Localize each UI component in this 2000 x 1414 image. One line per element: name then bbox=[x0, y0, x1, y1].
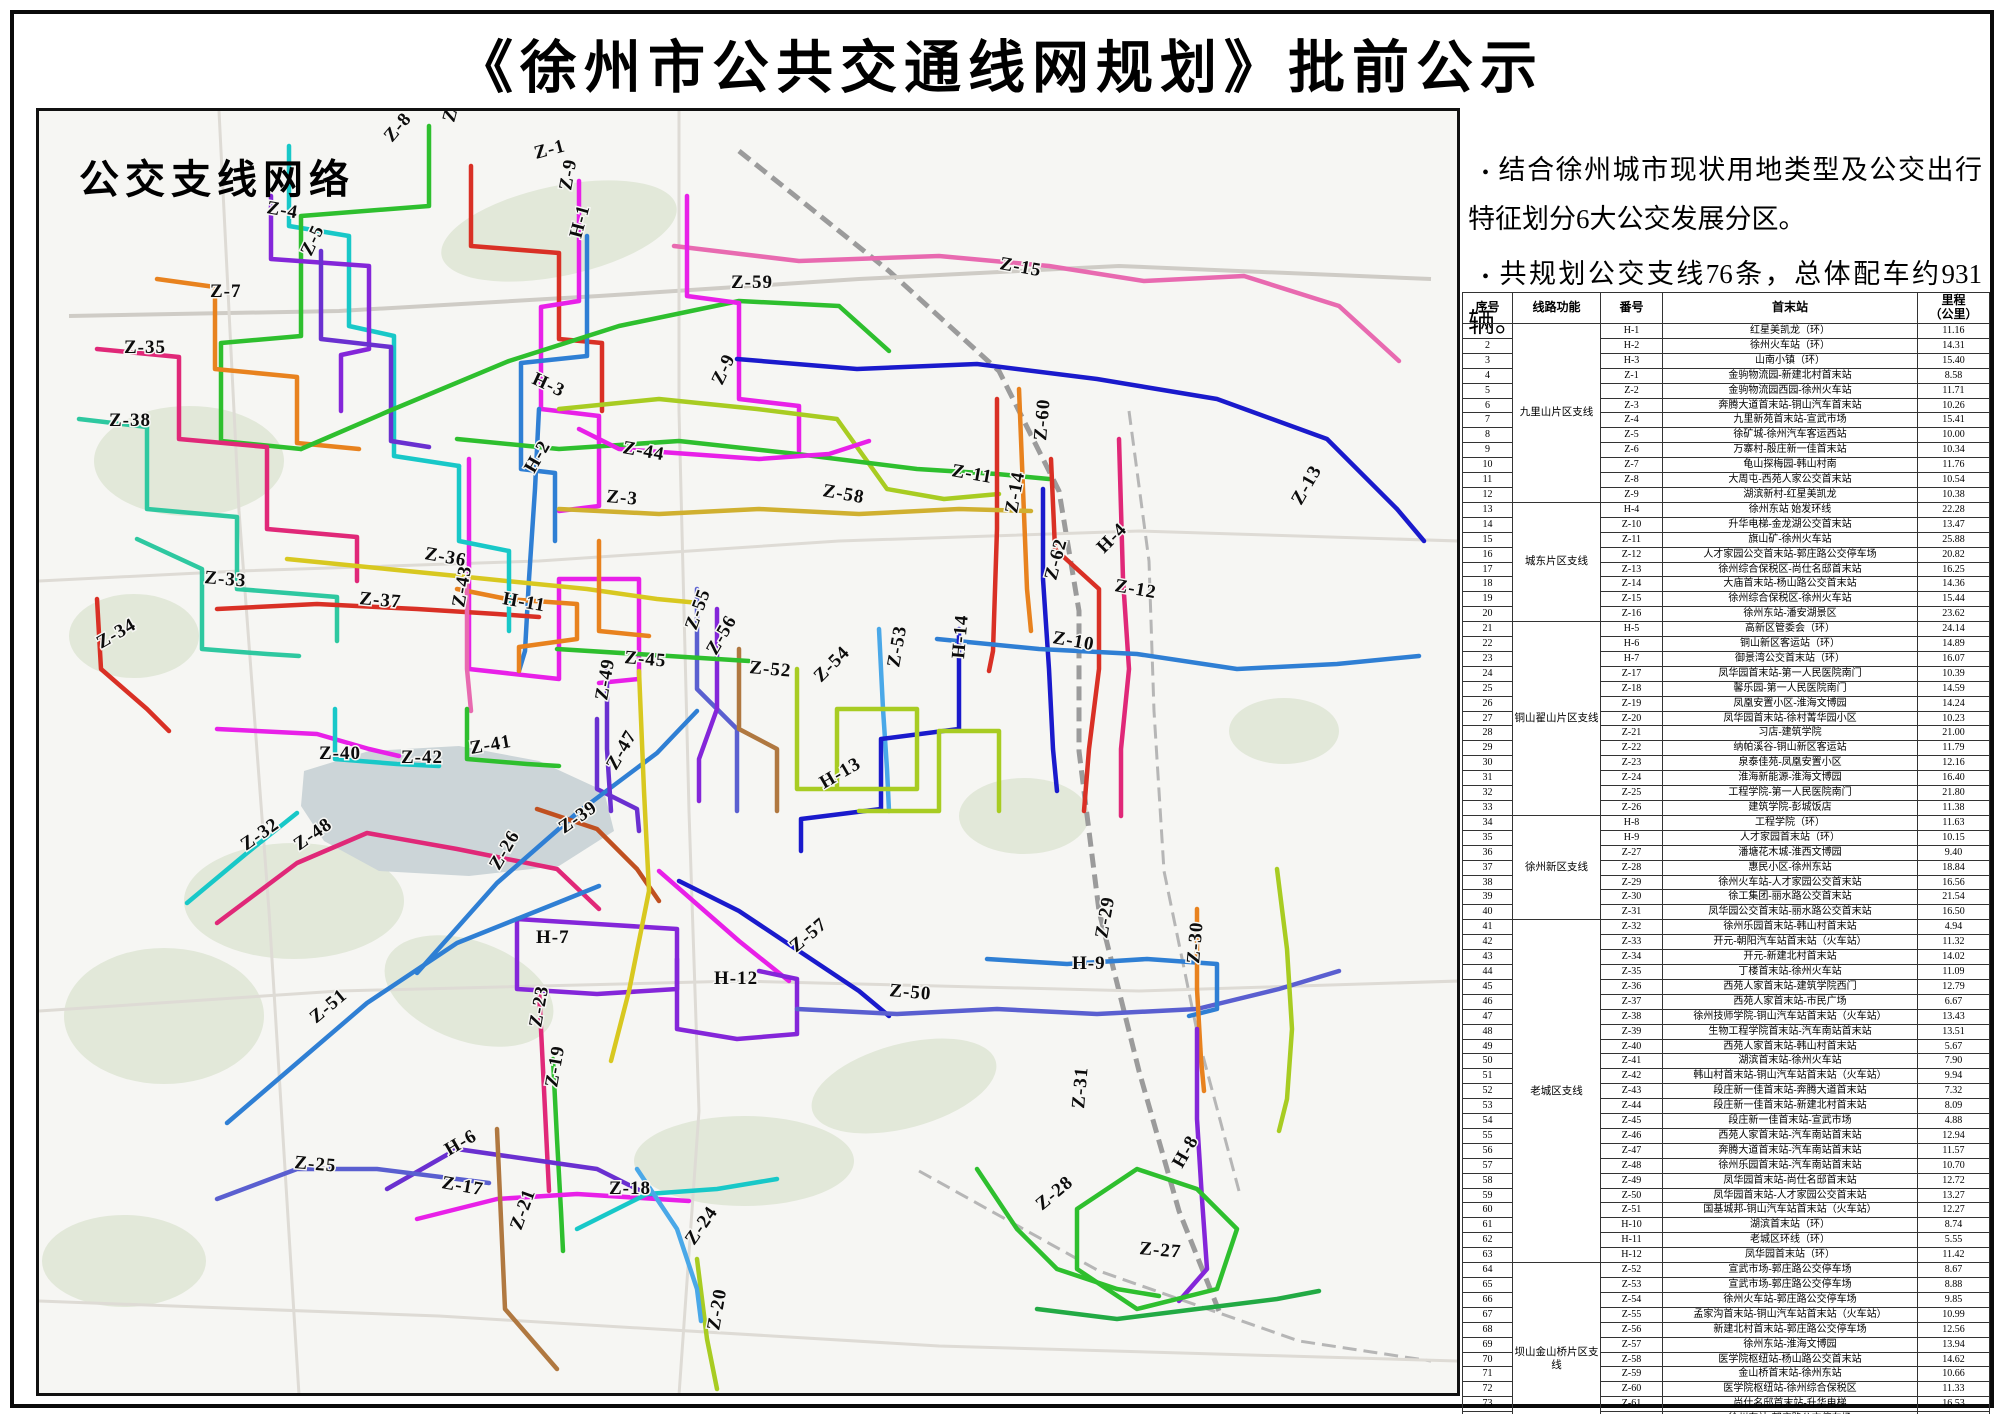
row-number-cell: 41 bbox=[1463, 920, 1513, 935]
terminus-cell: 徐州技师学院-铜山汽车站首末站（火车站） bbox=[1663, 1009, 1918, 1024]
route-code-cell: Z-47 bbox=[1601, 1143, 1663, 1158]
row-number-cell: 50 bbox=[1463, 1054, 1513, 1069]
route-code-cell: Z-50 bbox=[1601, 1188, 1663, 1203]
row-number-cell: 62 bbox=[1463, 1233, 1513, 1248]
terminus-cell: 段庄新一佳首末站-宣武市场 bbox=[1663, 1114, 1918, 1129]
mileage-cell: 4.94 bbox=[1918, 920, 1990, 935]
terminus-cell: 徐州综合保税区-尚仕名邸首末站 bbox=[1663, 562, 1918, 577]
row-number-cell: 64 bbox=[1463, 1263, 1513, 1278]
table-row: 1九里山片区支线H-1红星美凯龙（环）11.16 bbox=[1463, 324, 1990, 339]
route-code-cell: Z-44 bbox=[1601, 1099, 1663, 1114]
route-label: Z-54 bbox=[810, 642, 855, 687]
route-code-cell: Z-12 bbox=[1601, 547, 1663, 562]
route-label: H-12 bbox=[714, 968, 758, 989]
row-number-cell: 56 bbox=[1463, 1143, 1513, 1158]
row-number-cell: 54 bbox=[1463, 1114, 1513, 1129]
route-code-cell: Z-54 bbox=[1601, 1292, 1663, 1307]
table-header-cell: 序号 bbox=[1463, 293, 1513, 324]
route-code-cell: Z-4 bbox=[1601, 413, 1663, 428]
route-code-cell: Z-23 bbox=[1601, 756, 1663, 771]
mileage-cell: 14.31 bbox=[1918, 338, 1990, 353]
row-number-cell: 30 bbox=[1463, 756, 1513, 771]
mileage-cell: 21.54 bbox=[1918, 890, 1990, 905]
terminus-cell: 徐州东站-淮海文博园 bbox=[1663, 1337, 1918, 1352]
terminus-cell: 大庙首末站-杨山路公交首末站 bbox=[1663, 577, 1918, 592]
route-label: Z-19 bbox=[541, 1044, 569, 1089]
mileage-cell: 9.94 bbox=[1918, 1069, 1990, 1084]
mileage-cell: 10.70 bbox=[1918, 1158, 1990, 1173]
route-code-cell: H-11 bbox=[1601, 1233, 1663, 1248]
route-label: Z-59 bbox=[731, 272, 773, 293]
bus-route-line bbox=[559, 509, 1031, 514]
terminus-cell: 升华电梯-金龙湖公交首末站 bbox=[1663, 517, 1918, 532]
mileage-cell: 16.25 bbox=[1918, 562, 1990, 577]
route-label: Z-3 bbox=[606, 486, 639, 510]
route-code-cell: Z-39 bbox=[1601, 1024, 1663, 1039]
mileage-cell: 12.94 bbox=[1918, 1128, 1990, 1143]
route-label: Z-38 bbox=[109, 410, 151, 431]
row-number-cell: 43 bbox=[1463, 950, 1513, 965]
transit-map: Z-8Z-2Z-1Z-9Z-4Z-5H-1Z-7Z-15Z-59Z-35H-3Z… bbox=[39, 111, 1459, 1395]
terminus-cell: 徐州火车站-郭庄路公交停车场 bbox=[1663, 1292, 1918, 1307]
route-label: Z-15 bbox=[998, 253, 1043, 281]
mileage-cell: 12.56 bbox=[1918, 1322, 1990, 1337]
row-number-cell: 2 bbox=[1463, 338, 1513, 353]
row-number-cell: 15 bbox=[1463, 532, 1513, 547]
mileage-cell: 21.00 bbox=[1918, 726, 1990, 741]
row-number-cell: 66 bbox=[1463, 1292, 1513, 1307]
terminus-cell: 凤华园首末站（环） bbox=[1663, 1248, 1918, 1263]
mileage-cell: 14.02 bbox=[1918, 950, 1990, 965]
row-number-cell: 51 bbox=[1463, 1069, 1513, 1084]
route-label: Z-27 bbox=[1139, 1238, 1183, 1263]
mileage-cell: 11.79 bbox=[1918, 741, 1990, 756]
row-number-cell: 57 bbox=[1463, 1158, 1513, 1173]
route-label: Z-24 bbox=[681, 1202, 722, 1248]
route-label: Z-56 bbox=[702, 612, 741, 659]
route-label: Z-2 bbox=[439, 111, 467, 124]
terminus-cell: 淮海新能源-淮海文博园 bbox=[1663, 771, 1918, 786]
row-number-cell: 47 bbox=[1463, 1009, 1513, 1024]
terminus-cell: 西苑人家首末站-汽车南站首末站 bbox=[1663, 1128, 1918, 1143]
mileage-cell: 10.54 bbox=[1918, 473, 1990, 488]
route-code-cell: Z-40 bbox=[1601, 1039, 1663, 1054]
terminus-cell: 旗山矿-徐州火车站 bbox=[1663, 532, 1918, 547]
route-label: Z-20 bbox=[703, 1287, 731, 1332]
row-number-cell: 12 bbox=[1463, 487, 1513, 502]
route-code-cell: Z-2 bbox=[1601, 383, 1663, 398]
row-number-cell: 27 bbox=[1463, 711, 1513, 726]
terminus-cell: 金山桥首末站-徐州东站 bbox=[1663, 1367, 1918, 1382]
terminus-cell: 徐州火车站-人才家园公交首末站 bbox=[1663, 875, 1918, 890]
poster: 《徐州市公共交通线网规划》批前公示 bbox=[0, 0, 2000, 1414]
row-number-cell: 1 bbox=[1463, 324, 1513, 339]
terminus-cell: 湖滨首末站-徐州火车站 bbox=[1663, 1054, 1918, 1069]
route-code-cell: Z-56 bbox=[1601, 1322, 1663, 1337]
mileage-cell: 6.67 bbox=[1918, 994, 1990, 1009]
route-code-cell: Z-11 bbox=[1601, 532, 1663, 547]
route-code-cell: Z-20 bbox=[1601, 711, 1663, 726]
row-number-cell: 73 bbox=[1463, 1397, 1513, 1412]
row-number-cell: 40 bbox=[1463, 905, 1513, 920]
terminus-cell: 西苑人家首末站-韩山村首末站 bbox=[1663, 1039, 1918, 1054]
route-code-cell: Z-60 bbox=[1601, 1382, 1663, 1397]
mileage-cell: 10.39 bbox=[1918, 666, 1990, 681]
terminus-cell: 徐矿城-徐州汽车客运西站 bbox=[1663, 428, 1918, 443]
map-panel: Z-8Z-2Z-1Z-9Z-4Z-5H-1Z-7Z-15Z-59Z-35H-3Z… bbox=[36, 108, 1460, 1396]
row-number-cell: 61 bbox=[1463, 1218, 1513, 1233]
table-row: 13城东片区支线H-4徐州东站 始发环线22.28 bbox=[1463, 502, 1990, 517]
row-number-cell: 49 bbox=[1463, 1039, 1513, 1054]
route-label: Z-50 bbox=[889, 980, 933, 1005]
mileage-cell: 20.82 bbox=[1918, 547, 1990, 562]
mileage-cell: 5.67 bbox=[1918, 1039, 1990, 1054]
route-code-cell: H-8 bbox=[1601, 815, 1663, 830]
terminus-cell: 段庄新一佳首末站-新建北村首末站 bbox=[1663, 1099, 1918, 1114]
row-number-cell: 71 bbox=[1463, 1367, 1513, 1382]
mileage-cell: 7.32 bbox=[1918, 1084, 1990, 1099]
mileage-cell: 16.56 bbox=[1918, 875, 1990, 890]
note-line-1: •结合徐州城市现状用地类型及公交出行特征划分6大公交发展分区。 bbox=[1468, 146, 1982, 244]
route-code-cell: Z-7 bbox=[1601, 458, 1663, 473]
route-code-cell: Z-31 bbox=[1601, 905, 1663, 920]
route-label: Z-57 bbox=[786, 914, 832, 957]
route-code-cell: Z-30 bbox=[1601, 890, 1663, 905]
route-code-cell: Z-48 bbox=[1601, 1158, 1663, 1173]
route-label: Z-35 bbox=[124, 337, 166, 358]
terminus-cell: 御景湾公交首末站（环） bbox=[1663, 651, 1918, 666]
bus-route-line bbox=[1119, 439, 1129, 816]
mileage-cell: 8.58 bbox=[1918, 368, 1990, 383]
row-number-cell: 46 bbox=[1463, 994, 1513, 1009]
mileage-cell: 11.16 bbox=[1918, 324, 1990, 339]
route-code-cell: Z-6 bbox=[1601, 443, 1663, 458]
row-number-cell: 48 bbox=[1463, 1024, 1513, 1039]
terminus-cell: 徐州东站-潘安湖景区 bbox=[1663, 607, 1918, 622]
mileage-cell: 16.50 bbox=[1918, 905, 1990, 920]
terminus-cell: 纳帕溪谷-铜山新区客运站 bbox=[1663, 741, 1918, 756]
row-number-cell: 29 bbox=[1463, 741, 1513, 756]
row-number-cell: 39 bbox=[1463, 890, 1513, 905]
mileage-cell: 11.42 bbox=[1918, 1248, 1990, 1263]
mileage-cell: 24.14 bbox=[1918, 622, 1990, 637]
bus-route-line bbox=[1277, 869, 1292, 1131]
terminus-cell: 建筑学院-彭城饭店 bbox=[1663, 801, 1918, 816]
row-number-cell: 11 bbox=[1463, 473, 1513, 488]
row-number-cell: 19 bbox=[1463, 592, 1513, 607]
mileage-cell: 9.85 bbox=[1918, 1292, 1990, 1307]
mileage-cell: 13.47 bbox=[1918, 517, 1990, 532]
route-code-cell: Z-26 bbox=[1601, 801, 1663, 816]
mileage-cell: 13.94 bbox=[1918, 1337, 1990, 1352]
bus-route-line bbox=[611, 671, 649, 1061]
row-number-cell: 58 bbox=[1463, 1173, 1513, 1188]
mileage-cell: 10.34 bbox=[1918, 443, 1990, 458]
route-table-wrap: 序号线路功能番号首末站里程（公里） 1九里山片区支线H-1红星美凯龙（环）11.… bbox=[1462, 292, 1989, 1414]
row-number-cell: 34 bbox=[1463, 815, 1513, 830]
row-number-cell: 21 bbox=[1463, 622, 1513, 637]
bus-route-line bbox=[937, 639, 1419, 669]
table-row: 21铜山翟山片区支线H-5高新区管委会（环）24.14 bbox=[1463, 622, 1990, 637]
terminus-cell: 医学院枢纽站-徐州综合保税区 bbox=[1663, 1382, 1918, 1397]
route-code-cell: Z-51 bbox=[1601, 1203, 1663, 1218]
terminus-cell: 段庄新一佳首末站-奔腾大道首末站 bbox=[1663, 1084, 1918, 1099]
route-code-cell: Z-41 bbox=[1601, 1054, 1663, 1069]
row-number-cell: 22 bbox=[1463, 637, 1513, 652]
bus-route-line bbox=[679, 881, 889, 1016]
route-label: Z-37 bbox=[359, 588, 403, 613]
mileage-cell: 18.84 bbox=[1918, 860, 1990, 875]
route-code-cell: Z-42 bbox=[1601, 1069, 1663, 1084]
route-label: H-9 bbox=[1072, 953, 1106, 974]
route-label: Z-58 bbox=[821, 480, 866, 508]
table-header-cell: 首末站 bbox=[1663, 293, 1918, 324]
row-number-cell: 53 bbox=[1463, 1099, 1513, 1114]
terminus-cell: 红星美凯龙（环） bbox=[1663, 324, 1918, 339]
mileage-cell: 14.36 bbox=[1918, 577, 1990, 592]
mileage-cell: 5.55 bbox=[1918, 1233, 1990, 1248]
row-number-cell: 55 bbox=[1463, 1128, 1513, 1143]
route-label: H-7 bbox=[536, 927, 570, 948]
row-number-cell: 35 bbox=[1463, 830, 1513, 845]
route-code-cell: H-4 bbox=[1601, 502, 1663, 517]
terminus-cell: 徐州乐园首末站-汽车南站首末站 bbox=[1663, 1158, 1918, 1173]
row-number-cell: 20 bbox=[1463, 607, 1513, 622]
bus-route-line bbox=[1037, 1291, 1319, 1319]
terrain-patches bbox=[42, 162, 1339, 1307]
route-label: Z-40 bbox=[319, 743, 361, 764]
mileage-cell: 7.90 bbox=[1918, 1054, 1990, 1069]
mileage-cell: 11.33 bbox=[1918, 1382, 1990, 1397]
mileage-cell: 12.72 bbox=[1918, 1173, 1990, 1188]
mileage-cell: 12.27 bbox=[1918, 1203, 1990, 1218]
row-number-cell: 45 bbox=[1463, 979, 1513, 994]
row-number-cell: 68 bbox=[1463, 1322, 1513, 1337]
table-header-cell: 番号 bbox=[1601, 293, 1663, 324]
route-code-cell: Z-17 bbox=[1601, 666, 1663, 681]
mileage-cell: 14.62 bbox=[1918, 1352, 1990, 1367]
row-number-cell: 38 bbox=[1463, 875, 1513, 890]
route-label: Z-17 bbox=[440, 1172, 485, 1200]
map-corner-label: 公交支线网络 bbox=[79, 147, 355, 205]
route-code-cell: Z-49 bbox=[1601, 1173, 1663, 1188]
mileage-cell: 11.57 bbox=[1918, 1143, 1990, 1158]
terminus-cell: 西苑人家首末站-建筑学院西门 bbox=[1663, 979, 1918, 994]
row-number-cell: 28 bbox=[1463, 726, 1513, 741]
route-code-cell: Z-37 bbox=[1601, 994, 1663, 1009]
line-function-group-cell: 坝山金山桥片区支线 bbox=[1513, 1263, 1601, 1414]
route-label: Z-13 bbox=[1287, 462, 1326, 509]
mileage-cell: 13.51 bbox=[1918, 1024, 1990, 1039]
terminus-cell: 万寨村-殷庄新一佳首末站 bbox=[1663, 443, 1918, 458]
line-function-group-cell: 徐州新区支线 bbox=[1513, 815, 1601, 919]
row-number-cell: 6 bbox=[1463, 398, 1513, 413]
terminus-cell: 宣武市场-郭庄路公交停车场 bbox=[1663, 1263, 1918, 1278]
table-row: 41老城区支线Z-32徐州乐园首末站-韩山村首末站4.94 bbox=[1463, 920, 1990, 935]
route-code-cell: Z-9 bbox=[1601, 487, 1663, 502]
route-label: Z-28 bbox=[1032, 1172, 1078, 1215]
route-code-cell: Z-15 bbox=[1601, 592, 1663, 607]
row-number-cell: 9 bbox=[1463, 443, 1513, 458]
terminus-cell: 老城区环线（环） bbox=[1663, 1233, 1918, 1248]
terminus-cell: 大周屯-西苑人家公交首末站 bbox=[1663, 473, 1918, 488]
mileage-cell: 11.71 bbox=[1918, 383, 1990, 398]
route-code-cell: Z-34 bbox=[1601, 950, 1663, 965]
row-number-cell: 8 bbox=[1463, 428, 1513, 443]
table-header-cell: 里程（公里） bbox=[1918, 293, 1990, 324]
mileage-cell: 12.16 bbox=[1918, 756, 1990, 771]
route-code-cell: Z-43 bbox=[1601, 1084, 1663, 1099]
bullet-dot-icon: • bbox=[1468, 266, 1497, 288]
terminus-cell: 山南小镇（环） bbox=[1663, 353, 1918, 368]
terminus-cell: 湖滨首末站（环） bbox=[1663, 1218, 1918, 1233]
row-number-cell: 24 bbox=[1463, 666, 1513, 681]
terminus-cell: 人才家园首末站（环） bbox=[1663, 830, 1918, 845]
line-function-group-cell: 老城区支线 bbox=[1513, 920, 1601, 1263]
mileage-cell: 15.41 bbox=[1918, 413, 1990, 428]
mileage-cell: 10.23 bbox=[1918, 711, 1990, 726]
mileage-cell: 14.59 bbox=[1918, 681, 1990, 696]
mileage-cell: 16.40 bbox=[1918, 771, 1990, 786]
row-number-cell: 65 bbox=[1463, 1278, 1513, 1293]
row-number-cell: 32 bbox=[1463, 786, 1513, 801]
route-label: Z-33 bbox=[204, 567, 248, 592]
route-code-cell: Z-55 bbox=[1601, 1307, 1663, 1322]
route-label: Z-45 bbox=[624, 647, 668, 672]
row-number-cell: 37 bbox=[1463, 860, 1513, 875]
row-number-cell: 36 bbox=[1463, 845, 1513, 860]
info-panel: •结合徐州城市现状用地类型及公交出行特征划分6大公交发展分区。 •共规划公交支线… bbox=[1462, 108, 1989, 1392]
row-number-cell: 60 bbox=[1463, 1203, 1513, 1218]
terminus-cell: 人才家园公交首末站-郭庄路公交停车场 bbox=[1663, 547, 1918, 562]
route-code-cell: Z-5 bbox=[1601, 428, 1663, 443]
route-code-cell: H-1 bbox=[1601, 324, 1663, 339]
route-label: Z-7 bbox=[210, 281, 242, 302]
terminus-cell: 徐州火车站（环） bbox=[1663, 338, 1918, 353]
row-number-cell: 67 bbox=[1463, 1307, 1513, 1322]
route-label: Z-43 bbox=[448, 564, 476, 609]
route-code-cell: H-5 bbox=[1601, 622, 1663, 637]
row-number-cell: 10 bbox=[1463, 458, 1513, 473]
mileage-cell: 23.62 bbox=[1918, 607, 1990, 622]
table-header-cell: 线路功能 bbox=[1513, 293, 1601, 324]
table-row: 64坝山金山桥片区支线Z-52宣武市场-郭庄路公交停车场8.67 bbox=[1463, 1263, 1990, 1278]
mileage-cell: 16.07 bbox=[1918, 651, 1990, 666]
page-title: 《徐州市公共交通线网规划》批前公示 bbox=[0, 22, 2000, 104]
terminus-cell: 开元-朝阳汽车站首末站（火车站） bbox=[1663, 935, 1918, 950]
route-code-cell: H-7 bbox=[1601, 651, 1663, 666]
row-number-cell: 25 bbox=[1463, 681, 1513, 696]
route-label: Z-60 bbox=[1030, 398, 1055, 442]
mileage-cell: 8.88 bbox=[1918, 1278, 1990, 1293]
terminus-cell: 西苑人家首末站-市民广场 bbox=[1663, 994, 1918, 1009]
route-label: Z-52 bbox=[749, 657, 793, 682]
table-row: 34徐州新区支线H-8工程学院（环）11.63 bbox=[1463, 815, 1990, 830]
mileage-cell: 14.24 bbox=[1918, 696, 1990, 711]
terminus-cell: 金驹物流园-新建北村首末站 bbox=[1663, 368, 1918, 383]
terminus-cell: 医学院枢纽站-杨山路公交首末站 bbox=[1663, 1352, 1918, 1367]
route-code-cell: Z-27 bbox=[1601, 845, 1663, 860]
route-label: H-3 bbox=[529, 368, 568, 401]
route-code-cell: Z-45 bbox=[1601, 1114, 1663, 1129]
mileage-cell: 11.76 bbox=[1918, 458, 1990, 473]
terminus-cell: 尚仕名邸首末站-升华电梯 bbox=[1663, 1397, 1918, 1412]
mileage-cell: 8.67 bbox=[1918, 1263, 1990, 1278]
row-number-cell: 70 bbox=[1463, 1352, 1513, 1367]
mileage-cell: 10.26 bbox=[1918, 398, 1990, 413]
row-number-cell: 63 bbox=[1463, 1248, 1513, 1263]
route-code-cell: Z-59 bbox=[1601, 1367, 1663, 1382]
terminus-cell: 奔腾大道首末站-铜山汽车首末站 bbox=[1663, 398, 1918, 413]
row-number-cell: 31 bbox=[1463, 771, 1513, 786]
row-number-cell: 14 bbox=[1463, 517, 1513, 532]
terminus-cell: 凤华园首末站-尚仕名邸首末站 bbox=[1663, 1173, 1918, 1188]
terminus-cell: 凤华园首末站-第一人民医院南门 bbox=[1663, 666, 1918, 681]
mileage-cell: 15.40 bbox=[1918, 353, 1990, 368]
route-code-cell: Z-14 bbox=[1601, 577, 1663, 592]
route-code-cell: Z-1 bbox=[1601, 368, 1663, 383]
row-number-cell: 7 bbox=[1463, 413, 1513, 428]
terminus-cell: 开元-新建北村首末站 bbox=[1663, 950, 1918, 965]
terminus-cell: 铜山新区客运站（环） bbox=[1663, 637, 1918, 652]
route-label: Z-25 bbox=[294, 1152, 338, 1177]
route-label: Z-9 bbox=[707, 351, 739, 388]
mileage-cell: 10.38 bbox=[1918, 487, 1990, 502]
mileage-cell: 4.88 bbox=[1918, 1114, 1990, 1129]
mileage-cell: 10.99 bbox=[1918, 1307, 1990, 1322]
row-number-cell: 59 bbox=[1463, 1188, 1513, 1203]
terminus-cell: 金驹物流园西园-徐州火车站 bbox=[1663, 383, 1918, 398]
row-number-cell: 33 bbox=[1463, 801, 1513, 816]
route-code-cell: Z-58 bbox=[1601, 1352, 1663, 1367]
terminus-cell: 凤华园首末站-徐村菁华园小区 bbox=[1663, 711, 1918, 726]
route-label: H-14 bbox=[948, 614, 973, 660]
route-label: Z-55 bbox=[681, 586, 715, 633]
terminus-cell: 生物工程学院首末站-汽车南站首末站 bbox=[1663, 1024, 1918, 1039]
mileage-cell: 8.09 bbox=[1918, 1099, 1990, 1114]
route-code-cell: Z-10 bbox=[1601, 517, 1663, 532]
row-number-cell: 52 bbox=[1463, 1084, 1513, 1099]
mileage-cell: 10.66 bbox=[1918, 1367, 1990, 1382]
route-code-cell: Z-18 bbox=[1601, 681, 1663, 696]
route-code-cell: Z-28 bbox=[1601, 860, 1663, 875]
route-code-cell: Z-25 bbox=[1601, 786, 1663, 801]
route-code-cell: Z-24 bbox=[1601, 771, 1663, 786]
route-code-cell: Z-8 bbox=[1601, 473, 1663, 488]
row-number-cell: 69 bbox=[1463, 1337, 1513, 1352]
route-label: H-4 bbox=[1093, 519, 1132, 558]
terminus-cell: 龟山探梅园-韩山村南 bbox=[1663, 458, 1918, 473]
row-number-cell: 42 bbox=[1463, 935, 1513, 950]
row-number-cell: 44 bbox=[1463, 964, 1513, 979]
line-function-group-cell: 铜山翟山片区支线 bbox=[1513, 622, 1601, 816]
row-number-cell: 13 bbox=[1463, 502, 1513, 517]
route-label: Z-42 bbox=[401, 747, 443, 768]
route-code-cell: Z-57 bbox=[1601, 1337, 1663, 1352]
row-number-cell: 16 bbox=[1463, 547, 1513, 562]
route-code-cell: Z-61 bbox=[1601, 1397, 1663, 1412]
bullet-dot-icon: • bbox=[1468, 162, 1497, 184]
terminus-cell: 高新区管委会（环） bbox=[1663, 622, 1918, 637]
route-label: Z-53 bbox=[883, 624, 911, 669]
row-number-cell: 5 bbox=[1463, 383, 1513, 398]
terminus-cell: 工程学院-第一人民医院南门 bbox=[1663, 786, 1918, 801]
row-number-cell: 72 bbox=[1463, 1382, 1513, 1397]
route-code-cell: Z-38 bbox=[1601, 1009, 1663, 1024]
terminus-cell: 九里新苑首末站-宣武市场 bbox=[1663, 413, 1918, 428]
terminus-cell: 凤华园公交首末站-丽水路公交首末站 bbox=[1663, 905, 1918, 920]
row-number-cell: 26 bbox=[1463, 696, 1513, 711]
